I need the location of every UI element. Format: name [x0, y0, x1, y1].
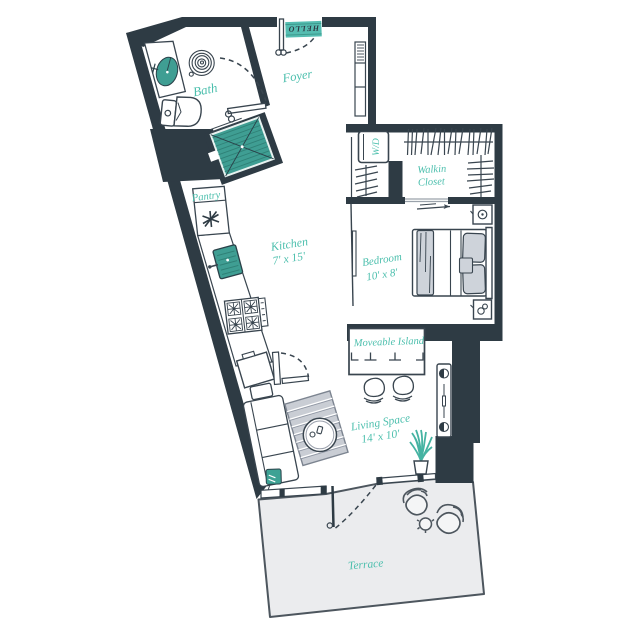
- svg-text:Walkin: Walkin: [417, 164, 446, 176]
- svg-text:Closet: Closet: [418, 176, 446, 188]
- svg-text:HELLO: HELLO: [288, 23, 320, 33]
- svg-text:W/D: W/D: [372, 138, 382, 156]
